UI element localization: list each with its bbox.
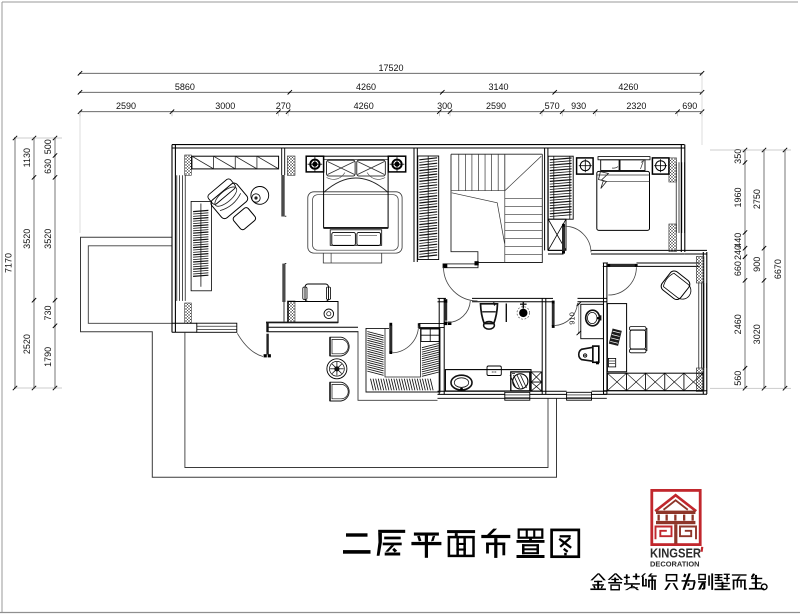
svg-text:17520: 17520 (378, 63, 403, 73)
svg-text:6670: 6670 (773, 259, 783, 279)
svg-text:4260: 4260 (354, 101, 374, 111)
svg-text:2590: 2590 (486, 101, 506, 111)
svg-text:7170: 7170 (4, 253, 14, 273)
svg-text:1960: 1960 (733, 187, 743, 207)
svg-text:1130: 1130 (22, 148, 32, 167)
svg-text:630: 630 (43, 159, 53, 174)
svg-text:560: 560 (733, 371, 743, 386)
svg-text:660: 660 (733, 261, 743, 276)
svg-text:3140: 3140 (488, 82, 508, 92)
svg-text:730: 730 (43, 305, 53, 320)
svg-text:3520: 3520 (43, 229, 53, 249)
svg-text:3520: 3520 (22, 229, 32, 249)
svg-text:350: 350 (733, 149, 743, 164)
svg-text:2460: 2460 (733, 314, 743, 334)
svg-text:690: 690 (682, 101, 697, 111)
svg-text:2320: 2320 (626, 101, 646, 111)
svg-text:240: 240 (733, 245, 743, 260)
svg-text:5860: 5860 (175, 82, 195, 92)
svg-text:2520: 2520 (22, 334, 32, 354)
svg-text:4260: 4260 (618, 82, 638, 92)
svg-text:500: 500 (43, 139, 53, 154)
svg-text:300: 300 (437, 101, 452, 111)
svg-text:570: 570 (545, 101, 560, 111)
svg-text:××: ×× (491, 370, 497, 375)
svg-text:KINGSER: KINGSER (650, 546, 701, 561)
svg-text:270: 270 (276, 101, 291, 111)
svg-text:3000: 3000 (215, 101, 235, 111)
svg-text:2590: 2590 (116, 101, 136, 111)
svg-text:930: 930 (571, 101, 586, 111)
svg-text:4260: 4260 (356, 82, 376, 92)
svg-text:DECORATION: DECORATION (650, 560, 700, 569)
svg-text:3020: 3020 (752, 324, 762, 344)
svg-text:900: 900 (752, 257, 762, 272)
svg-text:910: 910 (568, 312, 577, 325)
svg-text:2750: 2750 (752, 189, 762, 209)
svg-text:1790: 1790 (43, 347, 53, 367)
